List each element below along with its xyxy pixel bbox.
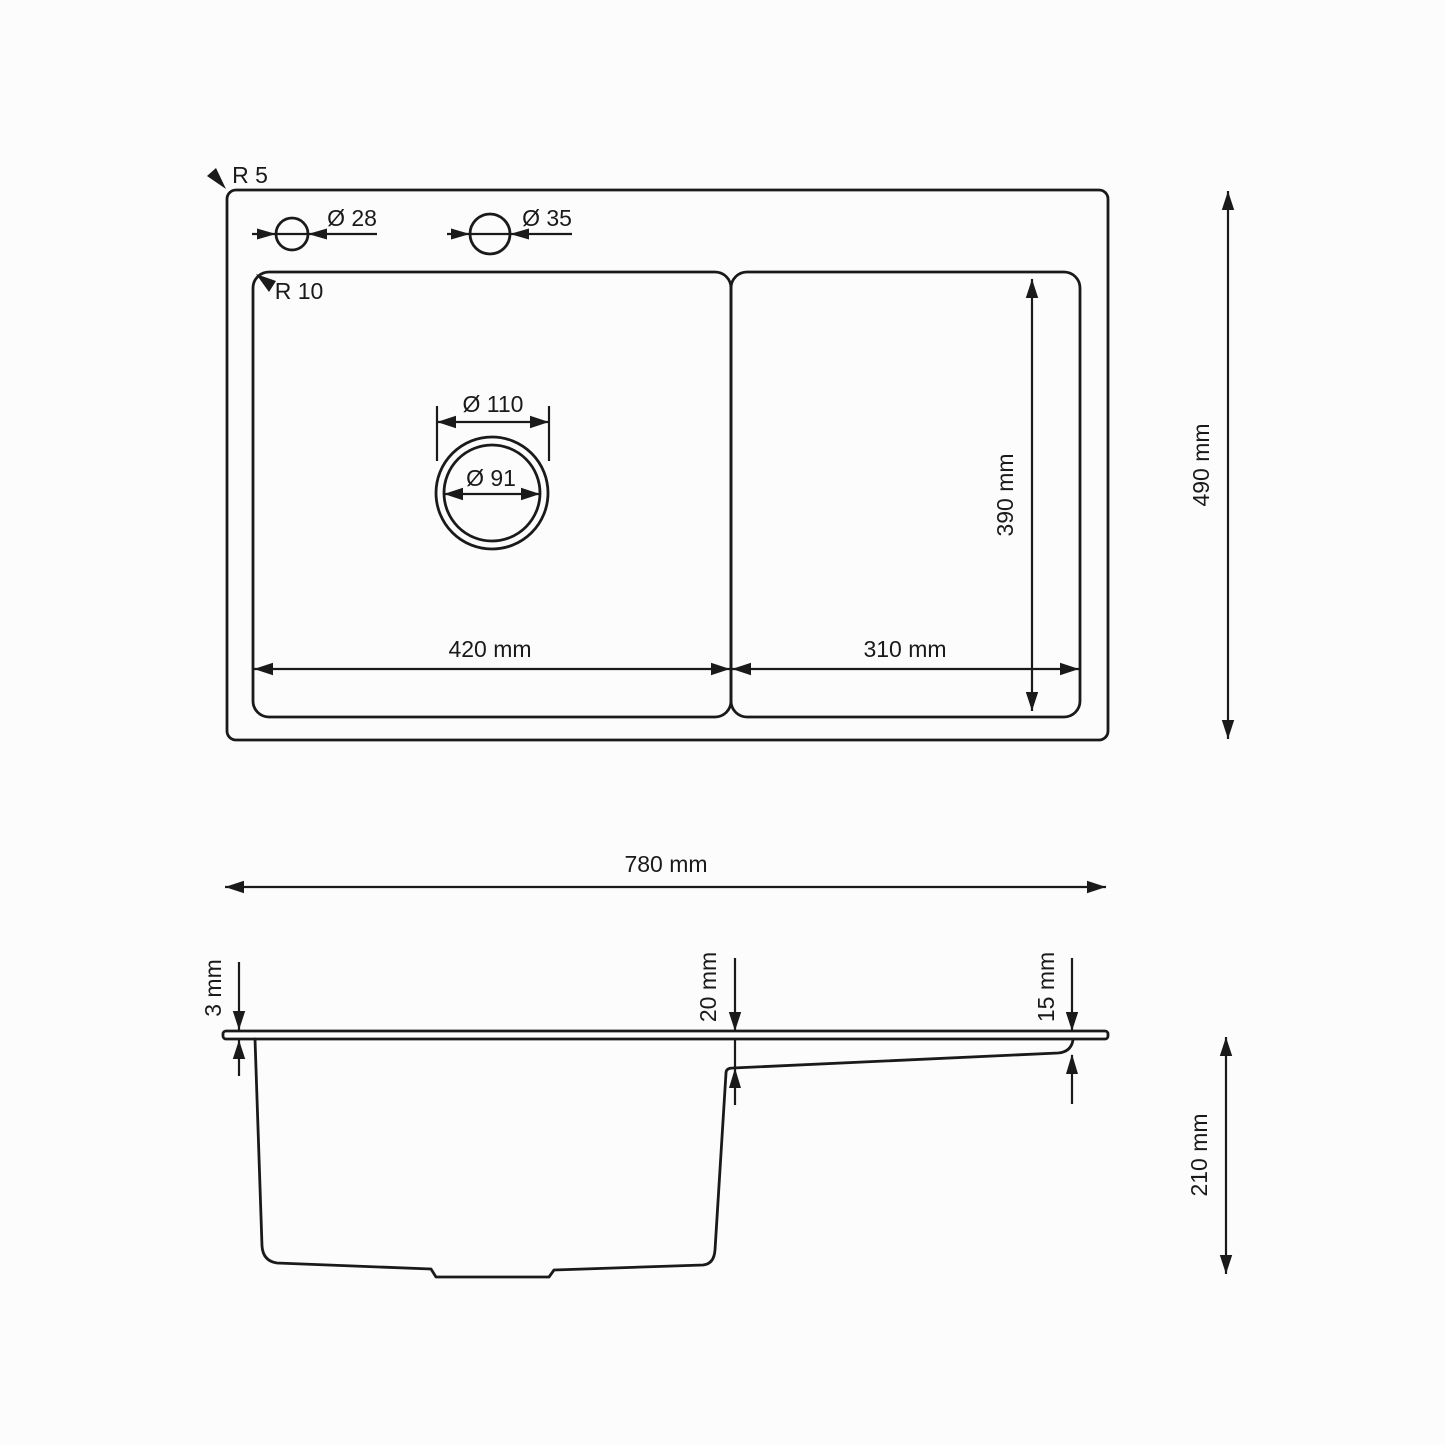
- sink-technical-drawing: Ø 28 Ø 35 R 5 R 10 Ø 110 Ø 91: [0, 0, 1445, 1445]
- drainer-step-label: 15 mm: [1033, 952, 1059, 1022]
- r5-arrow-icon: [207, 168, 226, 189]
- side-profile-path: [255, 1039, 1073, 1277]
- drain-outer-label: Ø 110: [463, 391, 524, 417]
- faucet-hole-large-label: Ø 35: [522, 205, 572, 231]
- inner-depth-label: 390 mm: [992, 453, 1018, 536]
- drawing-svg: Ø 28 Ø 35 R 5 R 10 Ø 110 Ø 91: [0, 0, 1445, 1445]
- drainer-width-label: 310 mm: [863, 636, 946, 662]
- bowl-depth-label: 210 mm: [1186, 1113, 1212, 1196]
- overall-depth-label: 490 mm: [1188, 423, 1214, 506]
- bowl-step-label: 20 mm: [695, 952, 721, 1022]
- faucet-hole-small-label: Ø 28: [327, 205, 377, 231]
- side-view: 3 mm 20 mm 15 mm 210 mm: [200, 952, 1226, 1277]
- drainer-step-up-arrow-icon: [1066, 1054, 1078, 1074]
- r5-label: R 5: [232, 162, 268, 188]
- overall-width-label: 780 mm: [624, 851, 707, 877]
- side-rim-bar: [223, 1031, 1108, 1039]
- top-view: Ø 28 Ø 35 R 5 R 10 Ø 110 Ø 91: [207, 162, 1228, 740]
- drain-inner-label: Ø 91: [466, 465, 516, 491]
- r10-label: R 10: [275, 278, 324, 304]
- overall-width-dimension: 780 mm: [225, 851, 1106, 887]
- bowl-width-label: 420 mm: [448, 636, 531, 662]
- rim-thickness-label: 3 mm: [200, 959, 226, 1017]
- bowl-step-up-arrow-icon: [729, 1068, 741, 1088]
